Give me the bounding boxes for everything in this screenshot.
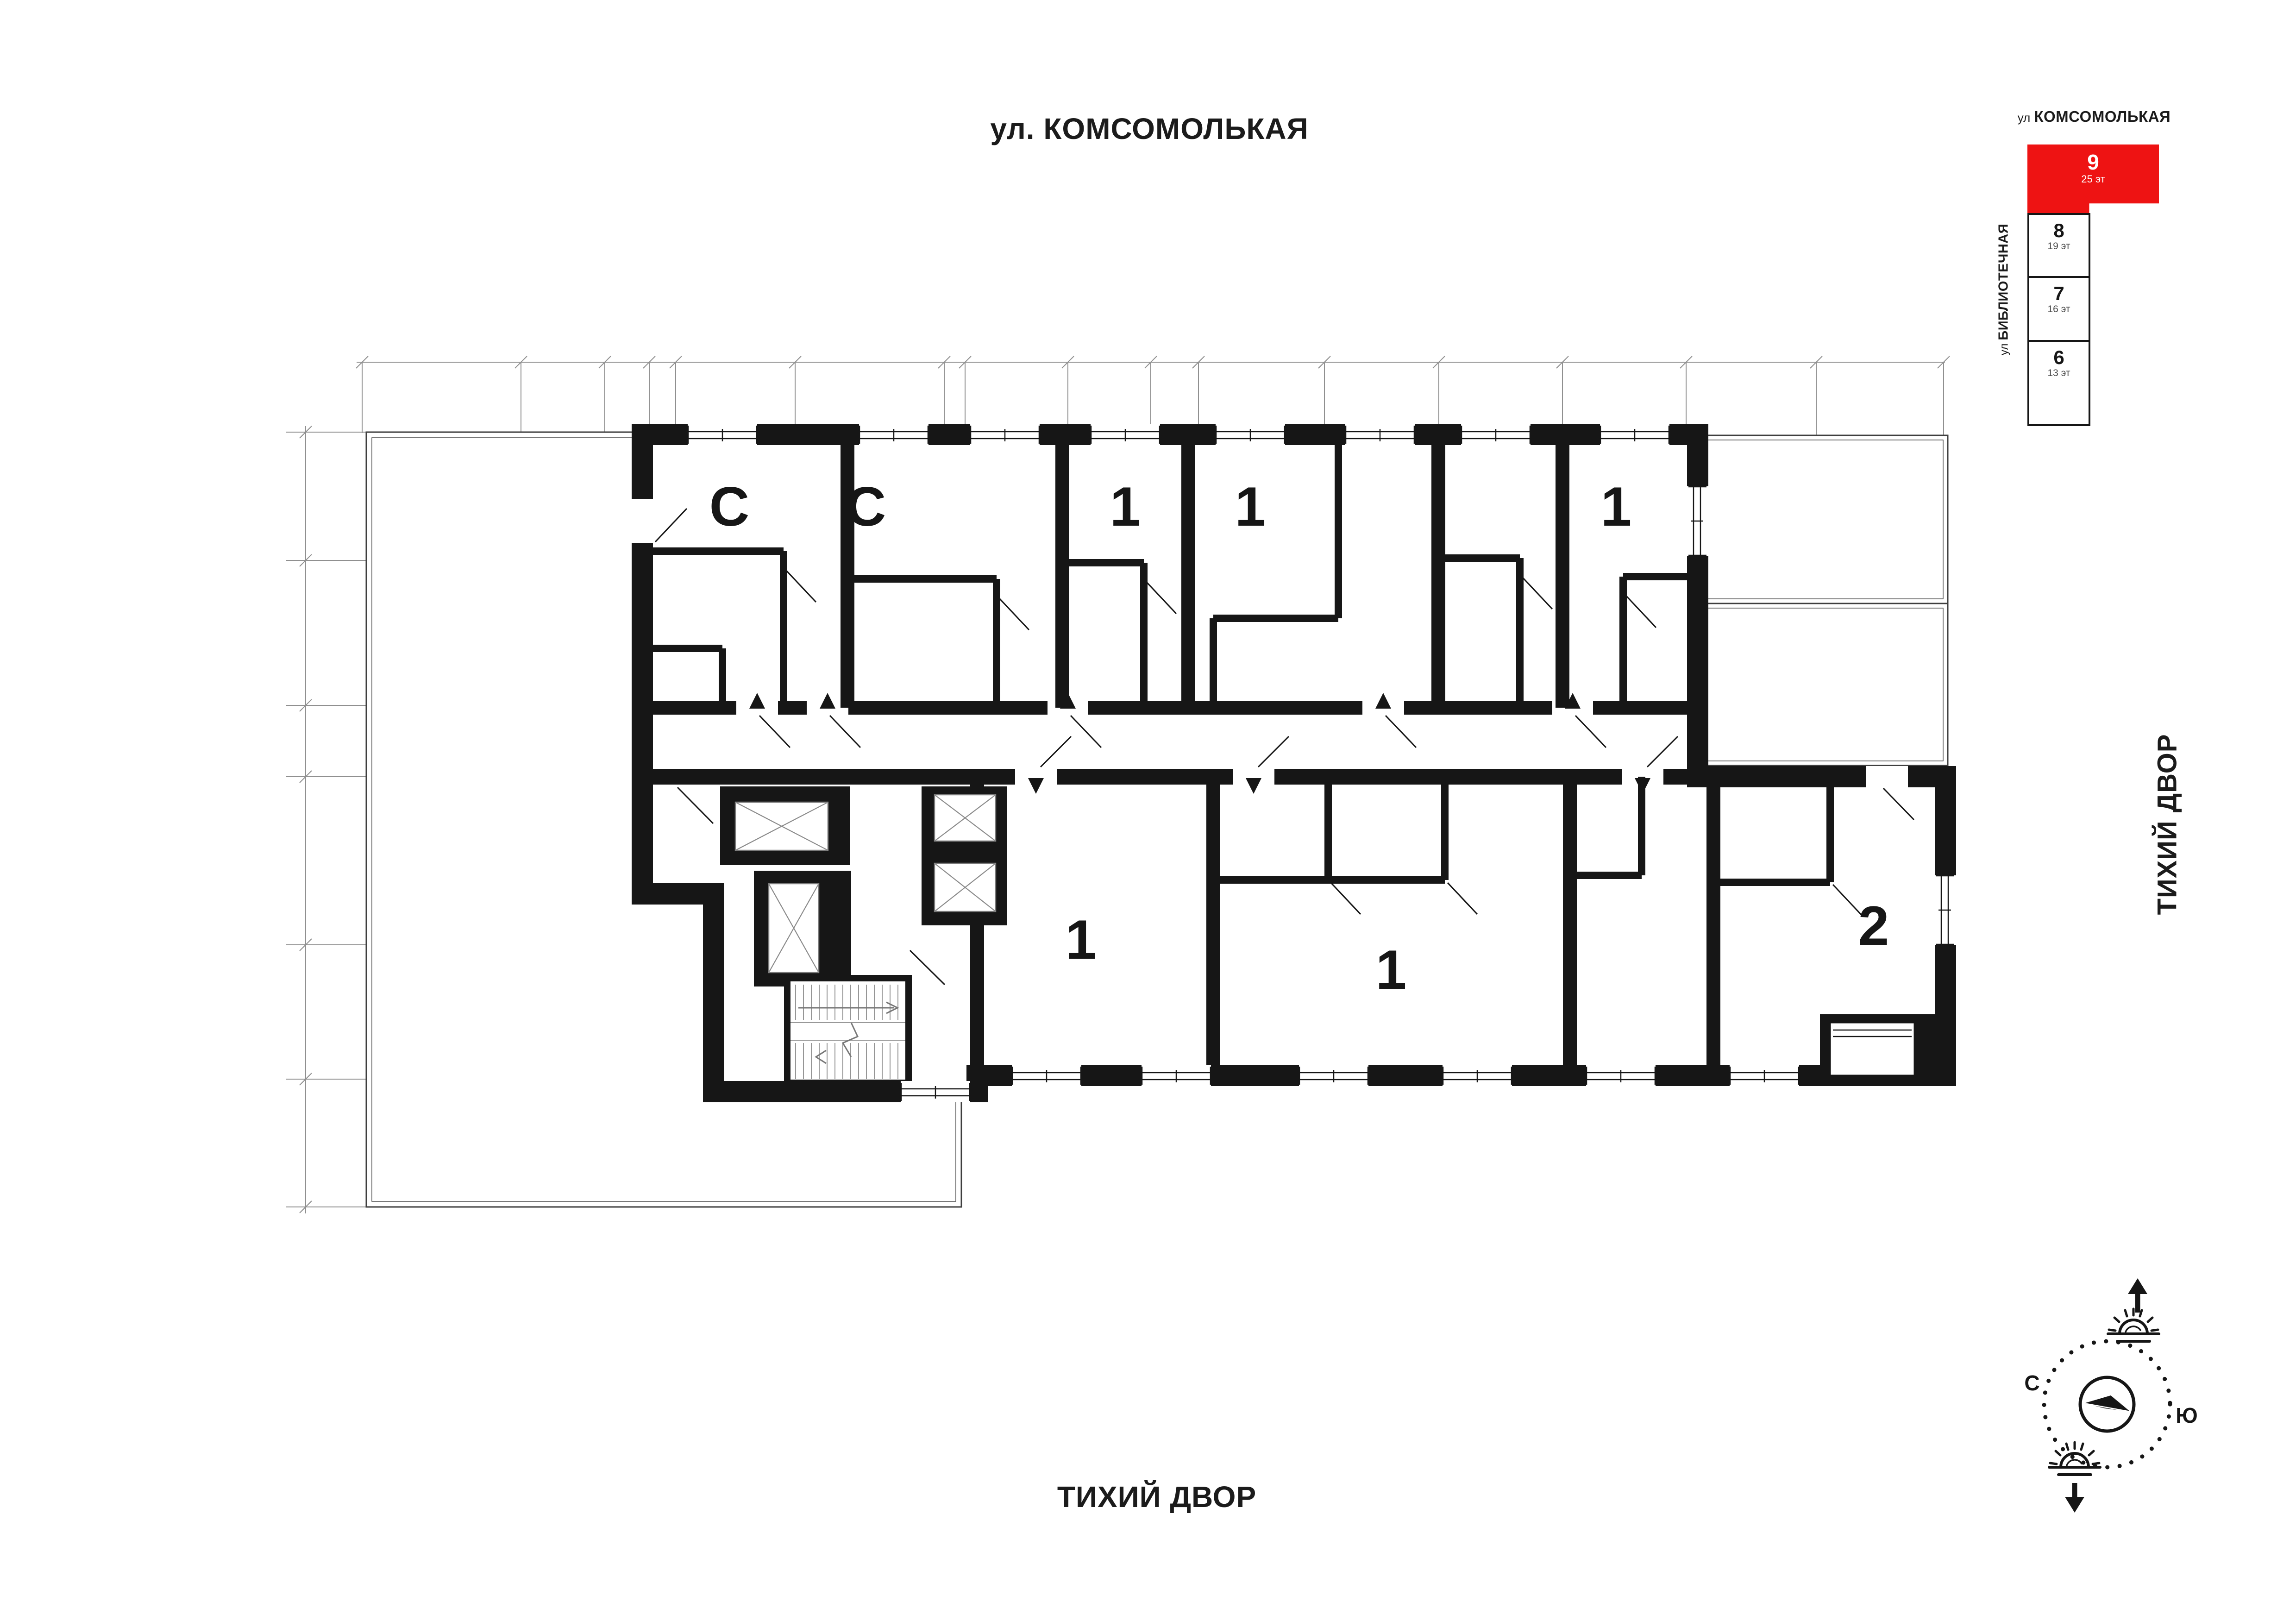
apartment-1room-c[interactable] xyxy=(1562,445,1698,704)
minimap-block-6[interactable]: 6 13 эт xyxy=(2027,340,2090,426)
minimap-street-side: улБИБЛИОТЕЧНАЯ xyxy=(1996,224,2012,355)
street-label-top: ул. КОМСОМОЛЬКАЯ xyxy=(990,112,1308,146)
sunset-icon-bottom xyxy=(2049,1442,2100,1475)
apartment-1room-d[interactable] xyxy=(977,787,1213,1070)
minimap-street-top-prefix: ул xyxy=(2018,111,2031,125)
sunrise-icon-top xyxy=(2108,1309,2159,1341)
minimap-block-9-floors: 25 эт xyxy=(2081,173,2105,185)
minimap-block-9-selected[interactable]: 9 25 эт xyxy=(2027,145,2159,213)
apartment-studio-2[interactable] xyxy=(847,445,1062,704)
apartment-1room-a[interactable] xyxy=(1062,445,1188,704)
minimap-street-top-name: КОМСОМОЛЬКАЯ xyxy=(2034,108,2171,125)
south-arrow-icon xyxy=(2065,1483,2084,1513)
courtyard-label-bottom: ТИХИЙ ДВОР xyxy=(1057,1480,1256,1514)
floor-plan-canvas: С С 1 1 1 1 1 2 С Ю xyxy=(0,0,2296,1621)
minimap-block-8[interactable]: 8 19 эт xyxy=(2027,213,2090,278)
apartment-1room-b[interactable] xyxy=(1188,445,1438,704)
apartment-studio-1[interactable] xyxy=(653,445,847,704)
minimap-block-8-floors: 19 эт xyxy=(2047,241,2070,252)
minimap-street-side-prefix: ул xyxy=(1998,344,2011,355)
minimap-block-8-number: 8 xyxy=(2053,220,2064,241)
stairwell xyxy=(787,978,909,1083)
apartment-2room[interactable] xyxy=(1713,787,1940,1070)
minimap-block-7-number: 7 xyxy=(2053,283,2064,304)
minimap-block-6-number: 6 xyxy=(2053,347,2064,368)
minimap-street-side-name: БИБЛИОТЕЧНАЯ xyxy=(1996,224,2011,340)
compass-north-label: С xyxy=(2024,1371,2039,1395)
minimap-block-6-floors: 13 эт xyxy=(2047,368,2070,379)
minimap-block-9-number: 9 xyxy=(2087,151,2099,173)
north-arrow-icon xyxy=(2128,1278,2147,1313)
minimap-block-7[interactable]: 7 16 эт xyxy=(2027,276,2090,342)
minimap-block-7-floors: 16 эт xyxy=(2047,304,2070,315)
apartment-1room-e[interactable] xyxy=(1213,787,1570,1070)
terrace-outline-right-upper xyxy=(1698,435,1948,603)
courtyard-label-right: ТИХИЙ ДВОР xyxy=(2152,734,2183,915)
terrace-outline-right-lower xyxy=(1698,603,1948,766)
minimap-street-top: улКОМСОМОЛЬКАЯ xyxy=(2018,108,2171,126)
floor-plan-page: С С 1 1 1 1 1 2 С Ю xyxy=(0,0,2296,1621)
compass: С Ю xyxy=(2024,1278,2197,1513)
compass-south-label: Ю xyxy=(2176,1403,2197,1427)
